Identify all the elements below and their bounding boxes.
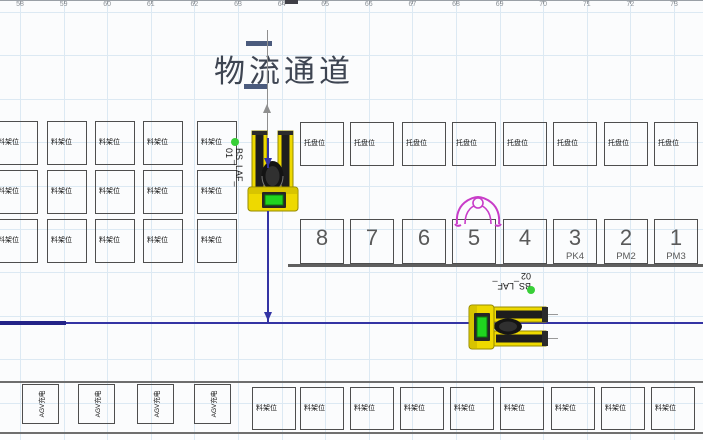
rack-slot[interactable]: 料架位 — [143, 219, 183, 263]
rack-slot-label: 料架位 — [201, 137, 222, 147]
machine1-label: BS_LAF_ 01 — [224, 148, 244, 212]
ruler-cursor-mark — [285, 0, 298, 4]
pallet-slot-label: 托盘位 — [658, 138, 679, 148]
station-slot-2[interactable]: 2PM2 — [604, 219, 648, 264]
ruler-number: 67 — [408, 1, 416, 8]
machine2-label: BS_LAF_ 02 — [477, 271, 531, 291]
rack-slot-label: 料架位 — [605, 403, 626, 413]
rack-slot-label: 料架位 — [99, 186, 120, 196]
rack-slot-label: 料架位 — [201, 186, 222, 196]
rack-slot-label: 料架位 — [51, 235, 72, 245]
bottom-rack-slot[interactable]: 料架位 — [450, 387, 494, 430]
pallet-slot[interactable]: 托盘位 — [654, 122, 698, 166]
station-sublabel: PM2 — [605, 251, 647, 262]
station-number: 8 — [301, 225, 343, 251]
station-number: 1 — [655, 225, 697, 251]
bottom-rack-slot[interactable]: 料架位 — [350, 387, 394, 430]
ruler-number: 61 — [147, 1, 155, 8]
rack-slot-label: 料架位 — [147, 235, 168, 245]
rack-slot-label: 料架位 — [404, 403, 425, 413]
rack-slot[interactable]: 料架位 — [0, 121, 38, 165]
status-dot-machine1 — [231, 138, 239, 146]
rack-slot[interactable]: 料架位 — [0, 170, 38, 214]
station-baseline — [288, 264, 703, 267]
agv-charge-slot[interactable]: AGV充电 — [137, 384, 174, 424]
agv-path-horizontal-thick — [0, 321, 66, 325]
rack-slot-label: 料架位 — [0, 235, 19, 245]
station-slot-8[interactable]: 8 — [300, 219, 344, 264]
agv-charge-slot-label: AGV充电 — [208, 391, 218, 418]
ruler-number: 62 — [190, 1, 198, 8]
bottom-rack-slot[interactable]: 料架位 — [551, 387, 595, 430]
rack-slot[interactable]: 料架位 — [143, 121, 183, 165]
station-number: 3 — [554, 225, 596, 251]
agv-path-horizontal — [0, 322, 703, 324]
ruler-number: 69 — [496, 1, 504, 8]
agv-charge-slot-label: AGV充电 — [92, 391, 102, 418]
ruler-number: 70 — [539, 1, 547, 8]
pallet-slot[interactable]: 托盘位 — [452, 122, 496, 166]
station-number: 6 — [403, 225, 445, 251]
station-slot-4[interactable]: 4 — [503, 219, 547, 264]
pallet-slot-label: 托盘位 — [507, 138, 528, 148]
rack-slot-label: 料架位 — [304, 403, 325, 413]
rack-slot-label: 料架位 — [0, 186, 19, 196]
grid-line-horizontal — [0, 359, 703, 360]
machine2-label-line1: BS_LAF_ — [477, 281, 531, 291]
pallet-slot-label: 托盘位 — [406, 138, 427, 148]
station-slot-3[interactable]: 3PK4 — [553, 219, 597, 264]
bottom-rack-slot[interactable]: 料架位 — [252, 387, 296, 430]
rack-slot-label: 料架位 — [256, 403, 277, 413]
arrow-down-icon — [264, 312, 272, 321]
arrow-down-icon — [264, 158, 272, 167]
pallet-slot[interactable]: 托盘位 — [402, 122, 446, 166]
machine-bs-laf-01[interactable] — [245, 130, 301, 213]
station-sublabel: PK4 — [554, 251, 596, 262]
rack-slot[interactable]: 料架位 — [95, 219, 135, 263]
rack-slot-label: 料架位 — [99, 235, 120, 245]
rack-slot-label: 料架位 — [51, 186, 72, 196]
bottom-rack-slot[interactable]: 料架位 — [601, 387, 645, 430]
ruler-number: 71 — [583, 1, 591, 8]
rack-slot-label: 料架位 — [99, 137, 120, 147]
guide-line-vertical — [267, 30, 268, 135]
page-title[interactable]: 物流通道 — [214, 46, 354, 91]
rack-slot-label: 料架位 — [147, 137, 168, 147]
pallet-slot-label: 托盘位 — [354, 138, 375, 148]
agv-charge-slot[interactable]: AGV充电 — [194, 384, 231, 424]
pallet-slot-label: 托盘位 — [456, 138, 477, 148]
ruler-number: 58 — [16, 1, 24, 8]
ruler-number: 68 — [452, 1, 460, 8]
grid-line-horizontal — [0, 272, 703, 273]
layout-canvas: 58596061626364656667686970717273 物流通道 料架… — [0, 0, 703, 440]
rack-slot-label: 料架位 — [147, 186, 168, 196]
pallet-slot[interactable]: 托盘位 — [503, 122, 547, 166]
station-number: 7 — [351, 225, 393, 251]
rack-slot-label: 料架位 — [0, 137, 19, 147]
agv-path-vertical-lower — [267, 211, 269, 323]
ruler-number: 60 — [103, 1, 111, 8]
status-dot-machine2 — [527, 286, 535, 294]
rack-slot-label: 料架位 — [354, 403, 375, 413]
station-slot-7[interactable]: 7 — [350, 219, 394, 264]
station-slot-6[interactable]: 6 — [402, 219, 446, 264]
rack-slot[interactable]: 料架位 — [47, 170, 87, 214]
bottom-rack-slot[interactable]: 料架位 — [400, 387, 444, 430]
pallet-slot-label: 托盘位 — [304, 138, 325, 148]
grid-line-horizontal — [0, 12, 703, 13]
machine2-label-line2: 02 — [477, 271, 531, 281]
agv-charge-slot-label: AGV充电 — [36, 391, 46, 418]
ruler-number: 66 — [365, 1, 373, 8]
pallet-slot-label: 托盘位 — [608, 138, 629, 148]
ruler-number: 72 — [626, 1, 634, 8]
agv-charge-slot[interactable]: AGV充电 — [22, 384, 59, 424]
station-number: 4 — [504, 225, 546, 251]
agv-charge-slot[interactable]: AGV充电 — [78, 384, 115, 424]
station-number: 2 — [605, 225, 647, 251]
ruler-number: 59 — [60, 1, 68, 8]
ruler-number: 65 — [321, 1, 329, 8]
rack-slot-label: 料架位 — [555, 403, 576, 413]
rack-slot[interactable]: 料架位 — [95, 170, 135, 214]
rack-slot[interactable]: 料架位 — [143, 170, 183, 214]
bottom-rack-slot[interactable]: 料架位 — [300, 387, 344, 430]
rack-slot-label: 料架位 — [201, 235, 222, 245]
operator-person-icon — [452, 193, 504, 227]
bottom-rack-slot[interactable]: 料架位 — [651, 387, 695, 430]
rack-slot-label: 料架位 — [504, 403, 525, 413]
ruler-number: 63 — [234, 1, 242, 8]
pallet-slot-label: 托盘位 — [557, 138, 578, 148]
station-slot-1[interactable]: 1PM3 — [654, 219, 698, 264]
pallet-slot[interactable]: 托盘位 — [350, 122, 394, 166]
rack-slot[interactable]: 料架位 — [0, 219, 38, 263]
pallet-slot[interactable]: 托盘位 — [553, 122, 597, 166]
rack-slot-label: 料架位 — [454, 403, 475, 413]
rack-slot[interactable]: 料架位 — [95, 121, 135, 165]
machine1-label-line2: 01 — [224, 148, 234, 212]
bottom-rack-slot[interactable]: 料架位 — [500, 387, 544, 430]
machine1-label-line1: BS_LAF_ — [234, 148, 244, 212]
pallet-slot[interactable]: 托盘位 — [300, 122, 344, 166]
conveyor-line-top — [0, 381, 703, 383]
rack-slot[interactable]: 料架位 — [47, 121, 87, 165]
rack-slot[interactable]: 料架位 — [197, 219, 237, 263]
ruler-number: 73 — [670, 1, 678, 8]
grid-line-vertical — [194, 5, 195, 440]
rack-slot[interactable]: 料架位 — [47, 219, 87, 263]
rack-slot-label: 料架位 — [655, 403, 676, 413]
station-number: 5 — [453, 225, 495, 251]
machine-bs-laf-02[interactable] — [466, 303, 558, 351]
pallet-slot[interactable]: 托盘位 — [604, 122, 648, 166]
grid-line-horizontal — [0, 99, 703, 100]
rack-slot-label: 料架位 — [51, 137, 72, 147]
station-sublabel: PM3 — [655, 251, 697, 262]
arrow-up-icon — [263, 104, 271, 113]
conveyor-line-bottom — [0, 432, 703, 434]
grid-line-horizontal — [0, 316, 703, 317]
agv-charge-slot-label: AGV充电 — [151, 391, 161, 418]
